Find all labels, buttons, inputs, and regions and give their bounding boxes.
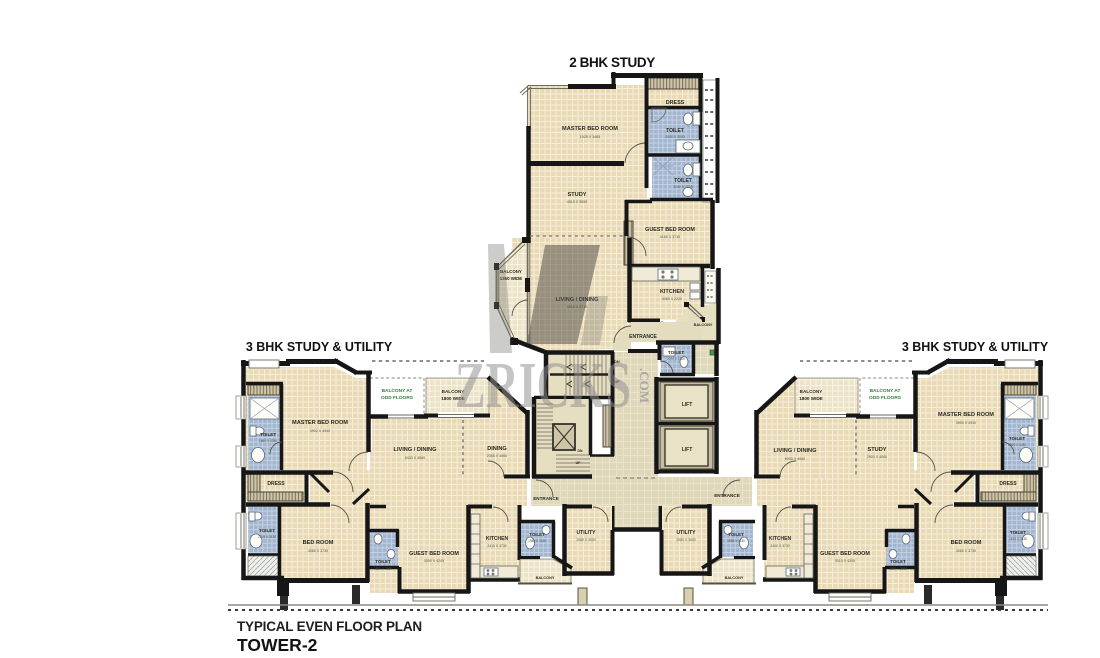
svg-text:TYPICAL EVEN FLOOR PLAN: TYPICAL EVEN FLOOR PLAN xyxy=(237,619,422,634)
svg-text:ENTRANCE: ENTRANCE xyxy=(714,493,740,498)
svg-text:KITCHEN: KITCHEN xyxy=(486,536,509,542)
svg-text:1800 WIDE: 1800 WIDE xyxy=(799,396,823,401)
svg-text:DRESS: DRESS xyxy=(999,481,1017,487)
svg-text:1860 X 4240: 1860 X 4240 xyxy=(259,439,277,443)
svg-text:4065 X 3730: 4065 X 3730 xyxy=(956,549,976,553)
svg-text:.COM: .COM xyxy=(637,368,652,403)
svg-text:GUEST BED ROOM: GUEST BED ROOM xyxy=(645,227,695,233)
svg-text:ENTRANCE: ENTRANCE xyxy=(533,496,559,501)
svg-text:TOILET: TOILET xyxy=(259,528,275,533)
svg-text:3 BHK STUDY & UTILITY: 3 BHK STUDY & UTILITY xyxy=(246,340,393,354)
svg-text:ENTRANCE: ENTRANCE xyxy=(629,334,657,340)
svg-text:MASTER BED ROOM: MASTER BED ROOM xyxy=(562,126,618,132)
svg-text:BALCONY: BALCONY xyxy=(800,389,823,394)
svg-text:3 BHK STUDY & UTILITY: 3 BHK STUDY & UTILITY xyxy=(902,340,1049,354)
svg-text:GUEST BED ROOM: GUEST BED ROOM xyxy=(820,551,870,557)
svg-text:1985 X 1130: 1985 X 1130 xyxy=(727,539,745,543)
svg-text:BALCONY: BALCONY xyxy=(536,576,555,580)
svg-text:ODD FLOORS: ODD FLOORS xyxy=(869,395,902,401)
svg-text:6430 X 4560: 6430 X 4560 xyxy=(405,456,425,460)
svg-text:4065 X 3730: 4065 X 3730 xyxy=(308,549,328,553)
svg-text:1520 X 2690: 1520 X 2690 xyxy=(889,567,907,571)
svg-text:LIVING / DINING: LIVING / DINING xyxy=(774,448,817,454)
svg-text:LIFT: LIFT xyxy=(682,447,693,453)
svg-text:1985 X 1130: 1985 X 1130 xyxy=(528,539,546,543)
svg-text:UTILITY: UTILITY xyxy=(677,530,697,536)
svg-text:TOILET: TOILET xyxy=(1010,530,1026,535)
svg-text:TOILET: TOILET xyxy=(728,532,744,537)
svg-text:1860 X 4240: 1860 X 4240 xyxy=(1008,443,1026,447)
svg-text:LIFT: LIFT xyxy=(682,402,693,408)
svg-text:BALCONY: BALCONY xyxy=(694,323,713,327)
svg-text:MASTER BED ROOM: MASTER BED ROOM xyxy=(292,420,348,426)
svg-text:2400 X 3730: 2400 X 3730 xyxy=(770,544,789,548)
svg-text:2 BHK STUDY: 2 BHK STUDY xyxy=(569,55,655,70)
svg-text:DRESS: DRESS xyxy=(267,481,285,487)
svg-text:1615 X 3130: 1615 X 3130 xyxy=(1009,537,1027,541)
svg-text:LIVING / DINING: LIVING / DINING xyxy=(394,447,437,453)
svg-text:ODD FLOORS: ODD FLOORS xyxy=(381,395,414,401)
svg-text:TOWER-2: TOWER-2 xyxy=(237,635,318,655)
svg-text:STUDY: STUDY xyxy=(868,447,887,453)
svg-text:BALCONY AT: BALCONY AT xyxy=(382,388,413,394)
svg-text:3900 X 4940: 3900 X 4940 xyxy=(956,421,976,425)
svg-text:2040 X 2035: 2040 X 2035 xyxy=(673,185,692,189)
svg-text:TOILET: TOILET xyxy=(890,559,906,564)
svg-text:2065 X 4060: 2065 X 4060 xyxy=(487,454,507,458)
svg-text:2215 X 3130: 2215 X 3130 xyxy=(258,535,276,539)
svg-text:TOILET: TOILET xyxy=(1009,436,1025,441)
svg-text:DRESS: DRESS xyxy=(666,100,685,106)
svg-text:2900 X 4060: 2900 X 4060 xyxy=(867,455,887,459)
svg-text:DINING: DINING xyxy=(487,446,507,452)
svg-text:TOILET: TOILET xyxy=(666,128,684,134)
svg-text:KITCHEN: KITCHEN xyxy=(769,536,792,542)
svg-text:KITCHEN: KITCHEN xyxy=(660,289,684,295)
svg-text:3060 X 2220: 3060 X 2220 xyxy=(662,297,682,301)
svg-text:BALCONY: BALCONY xyxy=(725,576,744,580)
svg-text:DN: DN xyxy=(578,449,583,453)
svg-text:4165 X 3715: 4165 X 3715 xyxy=(660,235,680,239)
svg-text:TOILET: TOILET xyxy=(529,532,545,537)
svg-text:TOILET: TOILET xyxy=(674,178,692,184)
svg-text:GUEST BED ROOM: GUEST BED ROOM xyxy=(409,551,459,557)
svg-text:STUDY: STUDY xyxy=(568,192,587,198)
svg-text:UTILITY: UTILITY xyxy=(577,530,597,536)
svg-text:3000 X 4205: 3000 X 4205 xyxy=(424,559,444,563)
svg-text:BED ROOM: BED ROOM xyxy=(951,540,982,546)
svg-text:MASTER BED ROOM: MASTER BED ROOM xyxy=(938,412,994,418)
svg-text:ZRICKS: ZRICKS xyxy=(455,349,631,422)
svg-text:TOILET: TOILET xyxy=(260,432,276,437)
svg-text:TOILET: TOILET xyxy=(668,350,684,355)
svg-text:2040 X 2000: 2040 X 2000 xyxy=(665,135,684,139)
svg-text:3902 X 4940: 3902 X 4940 xyxy=(310,429,330,433)
svg-text:4515 X 3005: 4515 X 3005 xyxy=(567,200,587,204)
svg-text:1925 X 3485: 1925 X 3485 xyxy=(580,135,600,139)
svg-text:BED ROOM: BED ROOM xyxy=(303,540,334,546)
svg-text:6030 X 4060: 6030 X 4060 xyxy=(785,457,805,461)
svg-text:1520 X 2500: 1520 X 2500 xyxy=(374,567,392,571)
svg-text:2080 X 3000: 2080 X 3000 xyxy=(576,538,595,542)
svg-text:BALCONY AT: BALCONY AT xyxy=(870,388,901,394)
svg-text:UP: UP xyxy=(576,461,581,465)
svg-text:3010 X 4205: 3010 X 4205 xyxy=(835,559,855,563)
svg-text:2080 X 3000: 2080 X 3000 xyxy=(676,538,695,542)
svg-text:2075 X 1300: 2075 X 1300 xyxy=(667,357,685,361)
svg-text:2415 X 3730: 2415 X 3730 xyxy=(487,544,506,548)
svg-text:TOILET: TOILET xyxy=(375,559,391,564)
